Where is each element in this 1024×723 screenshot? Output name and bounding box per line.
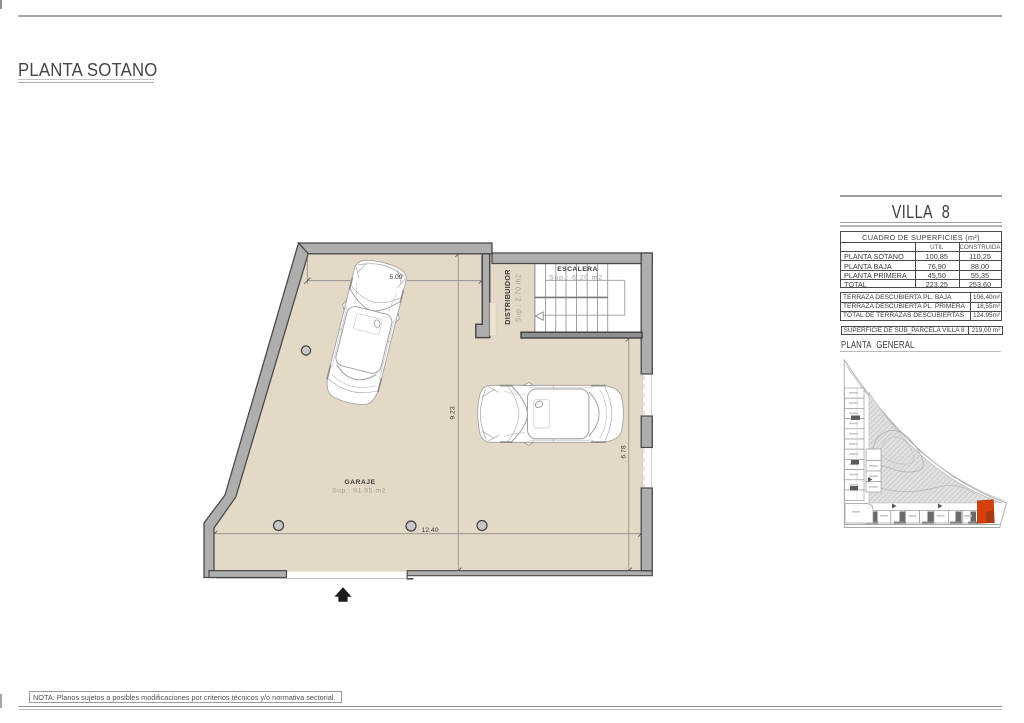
svg-text:DISTRIBUIDOR: DISTRIBUIDOR	[503, 269, 512, 325]
svg-text:GARAJE: GARAJE	[344, 479, 375, 486]
svg-text:5.09: 5.09	[389, 274, 402, 281]
svg-text:9.23: 9.23	[450, 406, 457, 419]
svg-text:Sup.: 91.95 m2: Sup.: 91.95 m2	[332, 488, 386, 495]
svg-text:ESCALERA: ESCALERA	[557, 266, 598, 273]
svg-text:Sup.: 6.20 m2: Sup.: 6.20 m2	[549, 274, 603, 281]
svg-text:6.78: 6.78	[621, 445, 628, 458]
svg-text:Sup.: 2.70 m2: Sup.: 2.70 m2	[516, 274, 523, 322]
svg-text:12.40: 12.40	[421, 527, 438, 534]
